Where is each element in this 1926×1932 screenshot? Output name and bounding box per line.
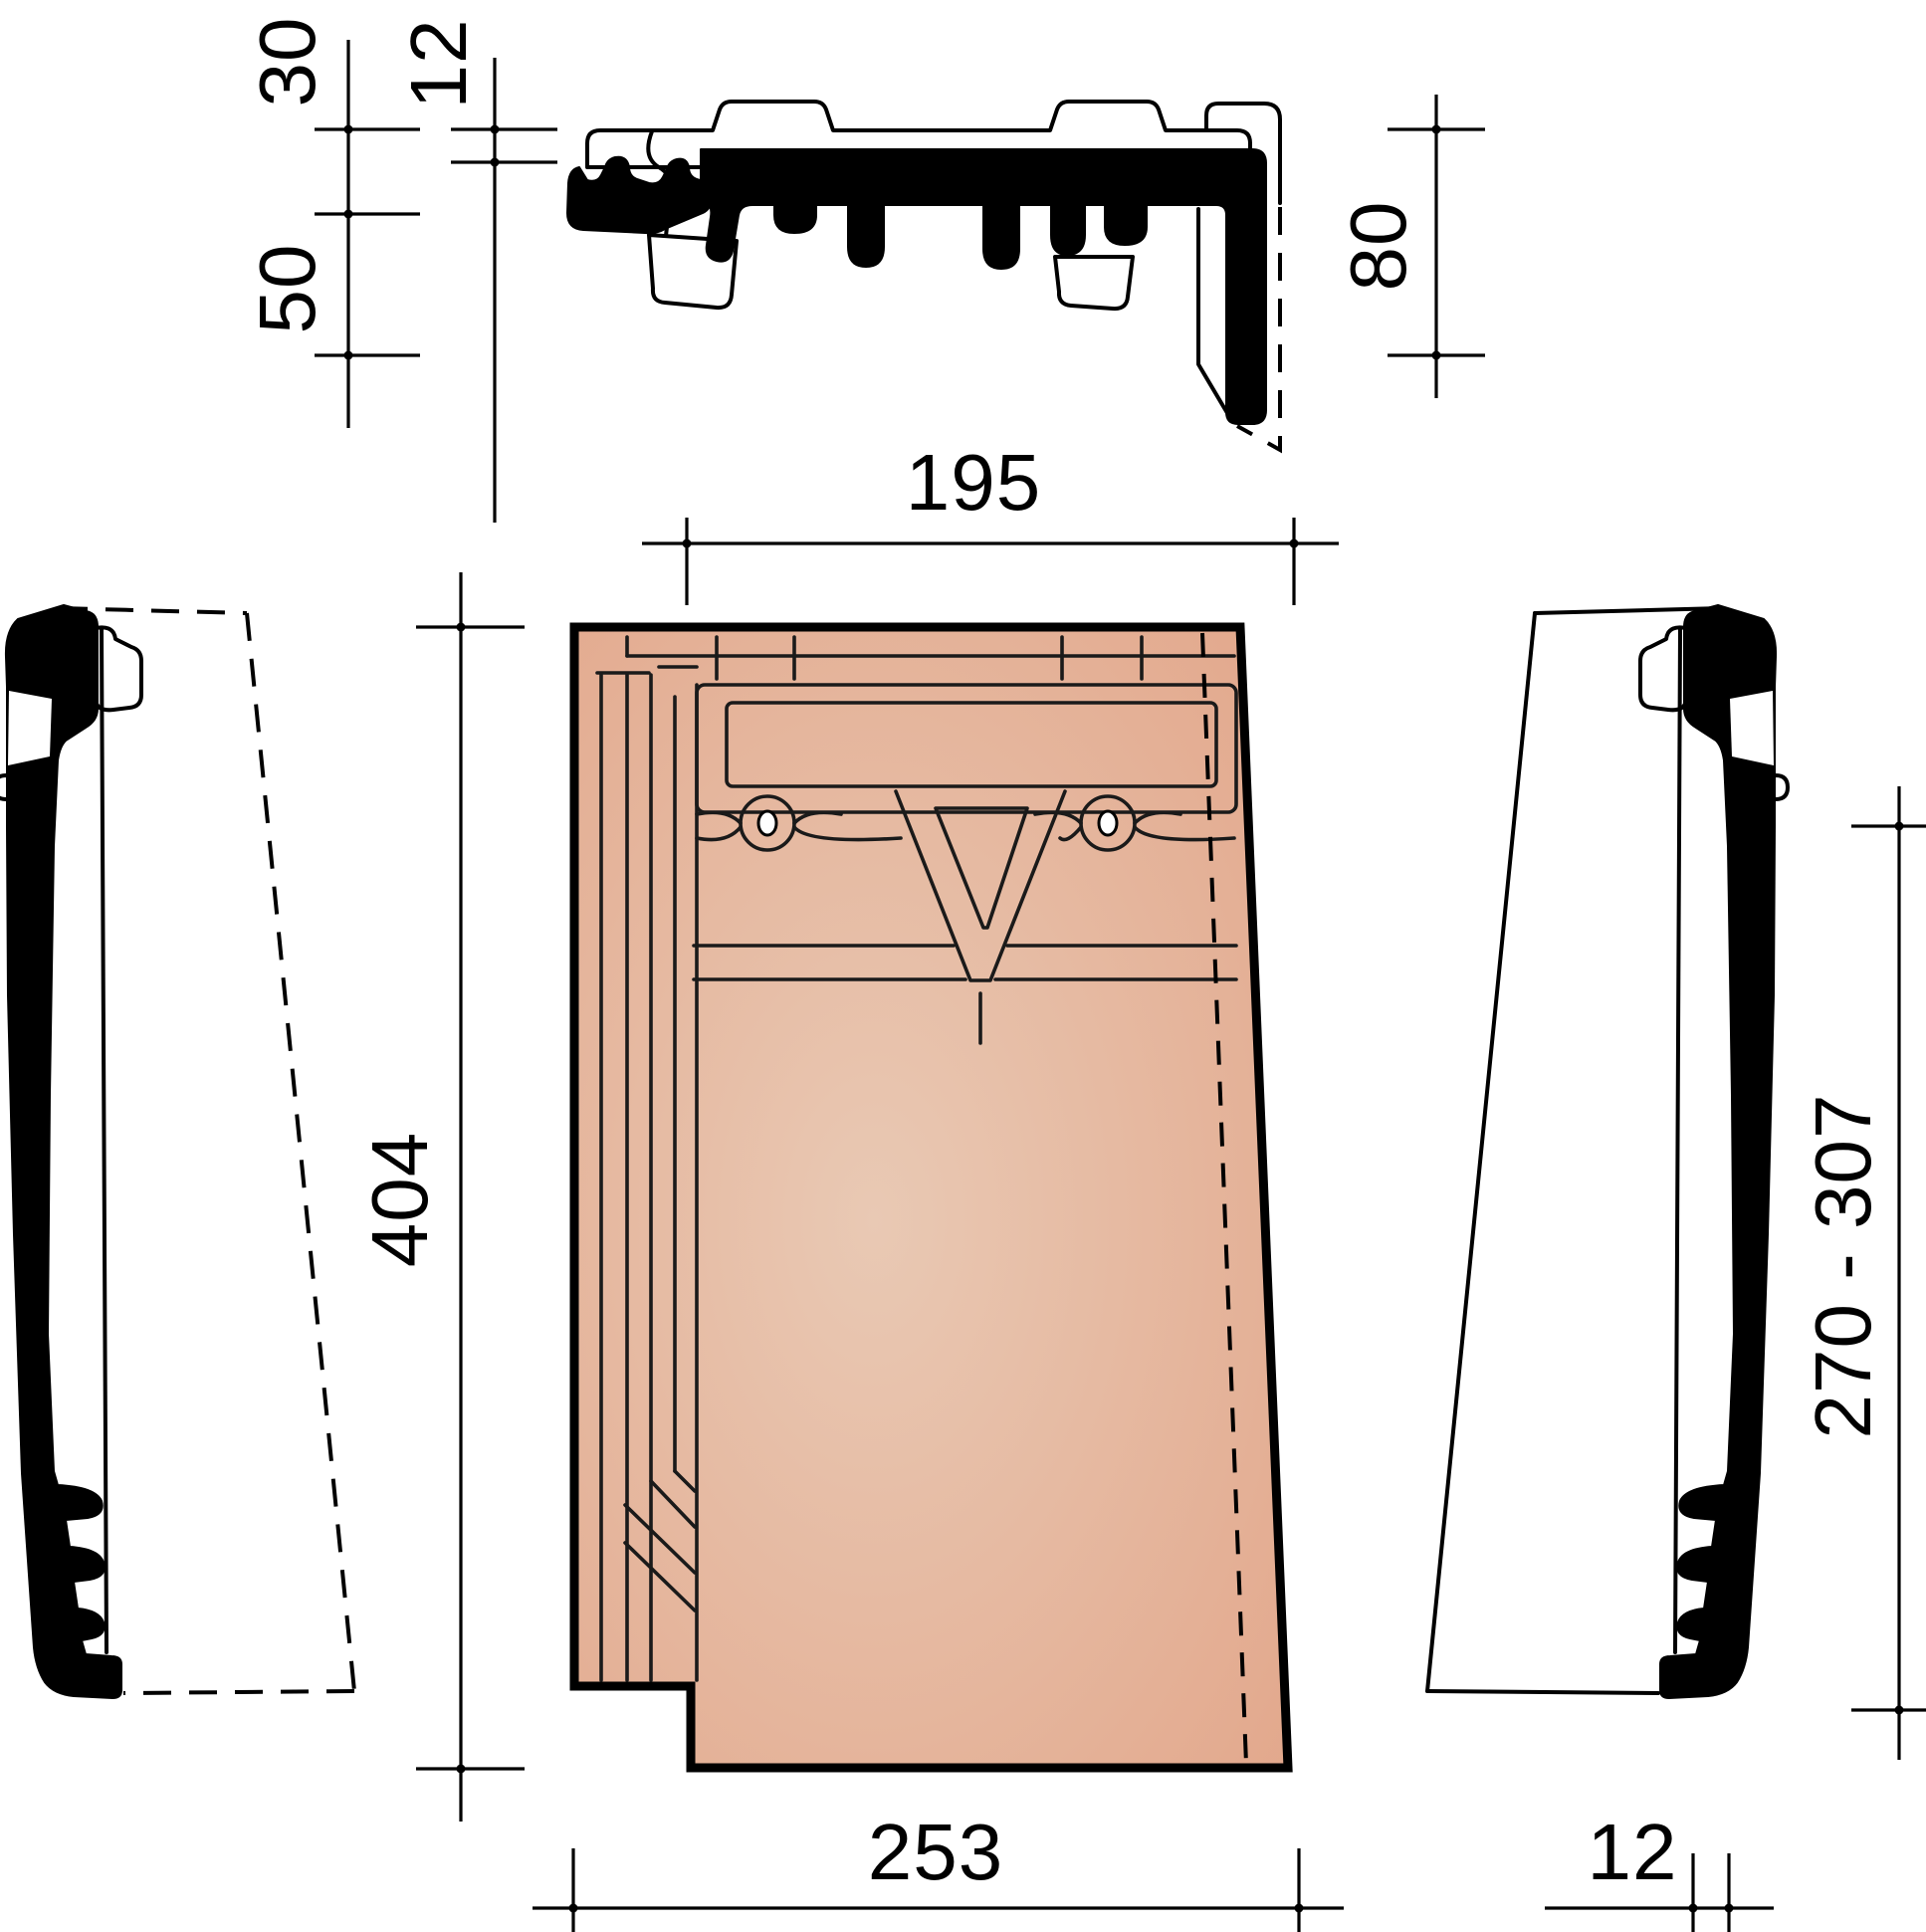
dim-label-270-307: 270 - 307 [1799,1093,1887,1438]
left-profile-view [0,605,354,1698]
right-profile-head-notch [1730,691,1774,765]
dim-195: 195 [642,438,1339,605]
left-profile-head-notch [8,691,52,765]
tile-technical-drawing-page: 30 50 12 80 195 [0,0,1926,1932]
dim-12-top: 12 [394,19,557,523]
right-profile-inner-edge [1675,629,1680,1652]
dim-12-bottom: 12 [1545,1808,1774,1932]
dim-label-12-bottom: 12 [1588,1808,1678,1896]
dim-label-195: 195 [906,438,1041,527]
section-profile-silhouette [701,149,1266,424]
dim-270-307: 270 - 307 [1799,786,1926,1760]
right-profile-flange [1640,627,1690,710]
section-view [567,102,1280,450]
dim-80: 80 [1334,95,1485,398]
plan-view [574,627,1288,1768]
dim-label-80: 80 [1334,201,1422,292]
dim-253: 253 [533,1808,1344,1932]
dim-label-404: 404 [355,1132,444,1267]
left-profile-flange [92,627,141,710]
right-profile-view [1427,605,1788,1698]
dim-label-253: 253 [868,1808,1003,1896]
dim-404: 404 [355,572,525,1822]
dim-label-30: 30 [243,17,331,107]
dim-label-12-top: 12 [394,19,483,109]
section-pocket-right [1055,257,1133,309]
dim-label-50: 50 [243,244,331,334]
technical-drawing: 30 50 12 80 195 [0,0,1926,1932]
left-profile-inner-edge [102,629,107,1652]
